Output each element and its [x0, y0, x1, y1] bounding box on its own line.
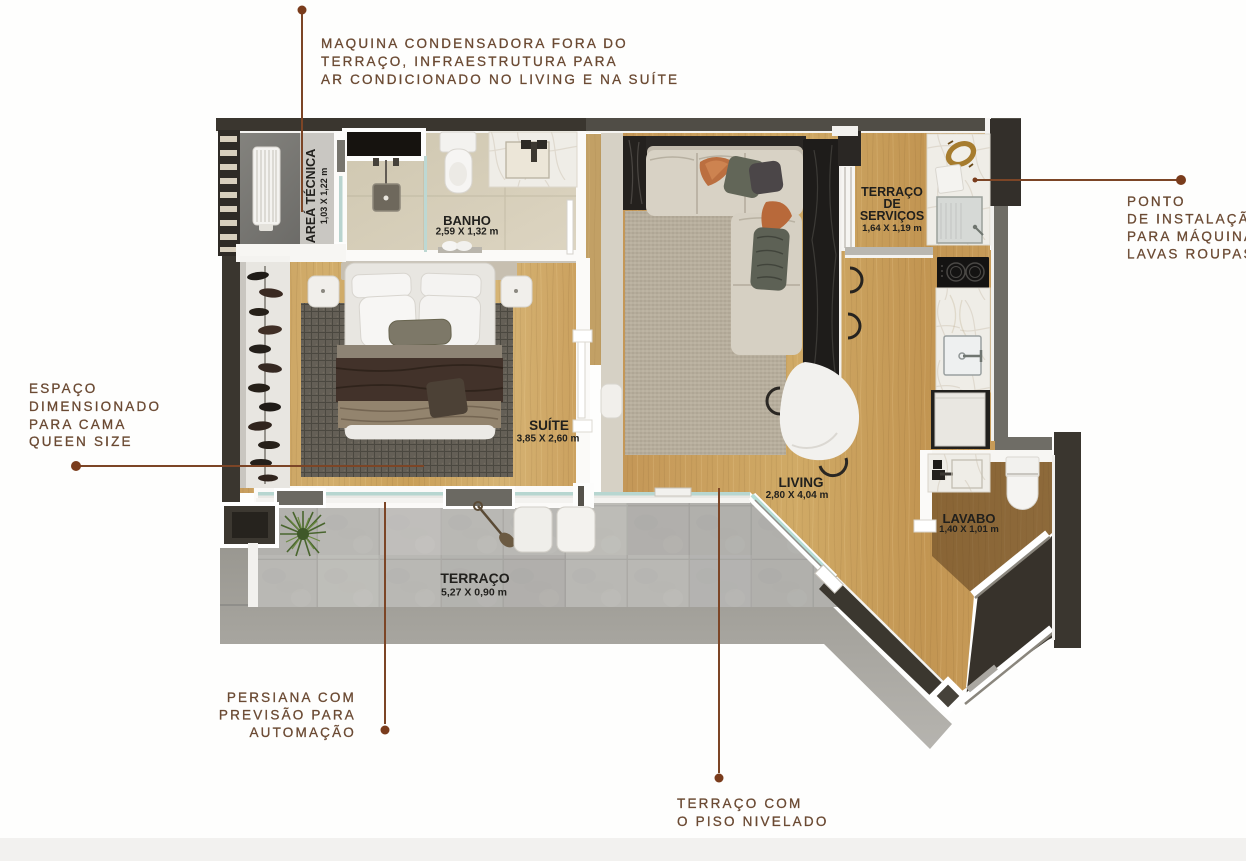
svg-text:O PISO NIVELADO: O PISO NIVELADO: [677, 814, 829, 829]
svg-text:1,40 X 1,01 m: 1,40 X 1,01 m: [939, 524, 999, 535]
svg-text:ESPAÇO: ESPAÇO: [29, 381, 97, 396]
svg-text:LAVAS ROUPAS: LAVAS ROUPAS: [1127, 247, 1246, 262]
svg-text:TERRAÇO: TERRAÇO: [440, 570, 509, 586]
svg-text:1,64 X 1,19 m: 1,64 X 1,19 m: [862, 223, 922, 234]
svg-text:TERRAÇO COM: TERRAÇO COM: [677, 796, 802, 811]
svg-text:PERSIANA COM: PERSIANA COM: [227, 690, 356, 705]
svg-text:PONTO: PONTO: [1127, 194, 1186, 209]
svg-text:1,03 X 1,22 m: 1,03 X 1,22 m: [319, 168, 329, 225]
svg-text:SERVIÇOS: SERVIÇOS: [860, 209, 924, 223]
svg-text:2,80 X 4,04 m: 2,80 X 4,04 m: [766, 490, 829, 501]
svg-text:5,27 X 0,90 m: 5,27 X 0,90 m: [441, 587, 507, 599]
svg-text:DIMENSIONADO: DIMENSIONADO: [29, 399, 161, 414]
svg-text:SUÍTE: SUÍTE: [529, 418, 569, 433]
svg-text:MAQUINA CONDENSADORA FORA DO: MAQUINA CONDENSADORA FORA DO: [321, 36, 628, 51]
svg-text:3,85 X 2,60 m: 3,85 X 2,60 m: [517, 434, 580, 445]
svg-text:2,59 X 1,32 m: 2,59 X 1,32 m: [436, 227, 499, 238]
svg-text:AR CONDICIONADO NO LIVING E NA: AR CONDICIONADO NO LIVING E NA SUÍTE: [321, 72, 679, 87]
svg-text:QUEEN SIZE: QUEEN SIZE: [29, 434, 133, 449]
svg-text:PARA MÁQUINA: PARA MÁQUINA: [1127, 229, 1246, 244]
svg-text:AUTOMAÇÃO: AUTOMAÇÃO: [249, 725, 356, 740]
svg-text:DE INSTALAÇÃO: DE INSTALAÇÃO: [1127, 212, 1246, 227]
svg-text:TERRAÇO, INFRAESTRUTURA PARA: TERRAÇO, INFRAESTRUTURA PARA: [321, 54, 618, 69]
svg-text:AREÁ TÉCNICA: AREÁ TÉCNICA: [303, 149, 318, 243]
svg-text:LIVING: LIVING: [778, 475, 823, 490]
svg-text:PREVISÃO PARA: PREVISÃO PARA: [219, 708, 356, 723]
svg-text:PARA CAMA: PARA CAMA: [29, 417, 127, 432]
